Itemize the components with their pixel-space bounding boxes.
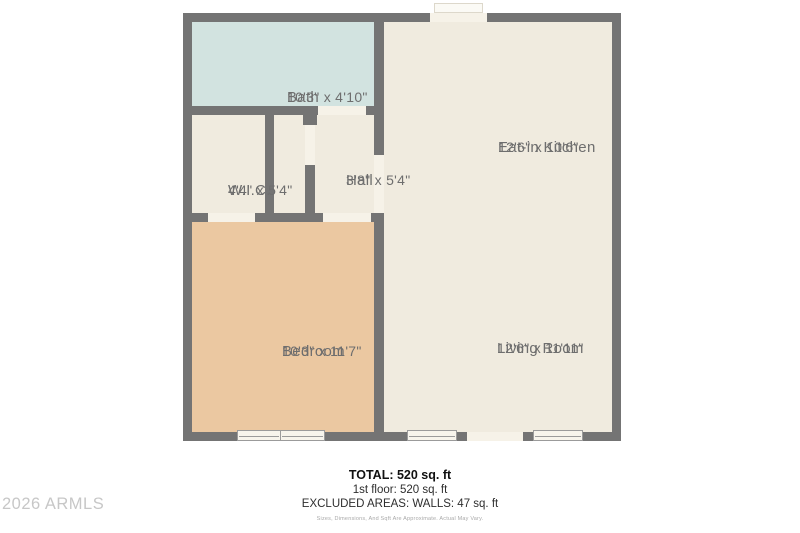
- total-area-text: TOTAL: 520 sq. ft: [0, 468, 800, 482]
- wall-bedroom-top-middle: [255, 213, 323, 222]
- bedroom-door-opening: [323, 213, 371, 222]
- disclaimer-text: Sizes, Dimensions, And Sqft Are Approxim…: [0, 516, 800, 522]
- hall-dimensions: 3'8" x 5'4": [346, 170, 411, 191]
- area-summary: TOTAL: 520 sq. ft 1st floor: 520 sq. ft …: [0, 468, 800, 522]
- bedroom-window-left: [237, 430, 281, 441]
- wall-bath-bottom-stub: [366, 106, 384, 115]
- wall-bath-hall-kitchen: [374, 13, 384, 155]
- floor-plan-image: Bath 10'3" x 4'10" W.I.C. 4'4" x 5'4" Ha…: [183, 13, 621, 441]
- wall-bedroom-top-right: [371, 213, 384, 222]
- closet-door-opening: [305, 125, 315, 165]
- front-door-opening: [467, 432, 523, 441]
- kitchen-dimensions: 12'6" x 10'6": [498, 137, 579, 158]
- living-room-window-left: [407, 430, 457, 441]
- wall-exterior-right: [612, 13, 621, 441]
- first-floor-area-text: 1st floor: 520 sq. ft: [0, 484, 800, 496]
- wall-closet-stub: [303, 115, 317, 125]
- wall-wic-right: [265, 115, 274, 222]
- bath-dimensions: 10'3" x 4'10": [287, 87, 368, 108]
- living-room-window-right: [533, 430, 583, 441]
- entry-door-leaf: [434, 3, 483, 13]
- bedroom-window-right: [280, 430, 325, 441]
- wall-bedroom-top-left: [183, 213, 208, 222]
- floor-plan-page: Bath 10'3" x 4'10" W.I.C. 4'4" x 5'4" Ha…: [0, 0, 800, 533]
- bedroom-floor-area: [191, 222, 374, 432]
- bedroom-dimensions: 10'3" x 11'7": [282, 341, 362, 362]
- wic-door-opening: [208, 213, 255, 222]
- entry-door-opening: [430, 13, 487, 22]
- armls-watermark: 2026 ARMLS: [2, 495, 104, 514]
- wall-exterior-top: [183, 13, 621, 22]
- wic-dimensions: 4'4" x 5'4": [228, 180, 293, 201]
- excluded-area-text: EXCLUDED AREAS: WALLS: 47 sq. ft: [0, 498, 800, 510]
- living-room-dimensions: 12'6" x 11'11": [497, 338, 584, 359]
- wall-exterior-left: [183, 13, 192, 441]
- wall-bedroom-living: [374, 213, 384, 441]
